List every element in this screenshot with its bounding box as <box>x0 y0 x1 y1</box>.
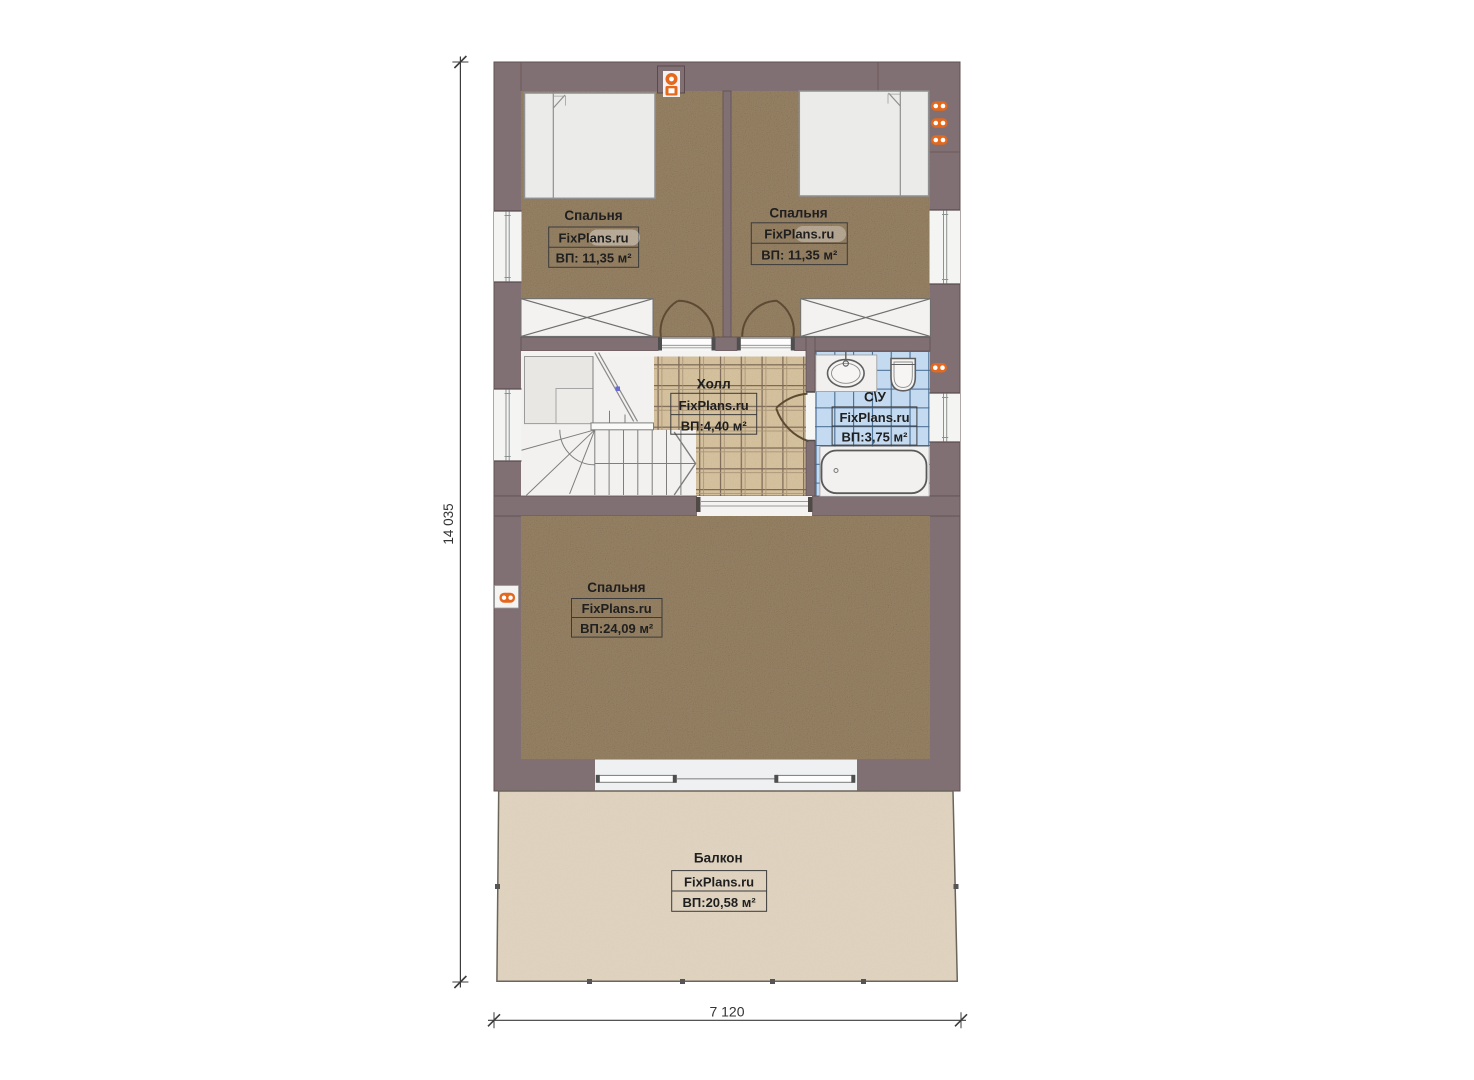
svg-text:ВП:3,75 м²: ВП:3,75 м² <box>842 429 909 444</box>
svg-text:Холл: Холл <box>697 377 731 392</box>
svg-text:ВП:4,40 м²: ВП:4,40 м² <box>681 418 748 433</box>
svg-text:FixPlans.ru: FixPlans.ru <box>839 410 909 425</box>
svg-text:Спальня: Спальня <box>564 208 622 223</box>
svg-text:FixPlans.ru: FixPlans.ru <box>679 398 749 413</box>
svg-text:Спальня: Спальня <box>587 580 645 595</box>
svg-text:ВП: 11,35 м²: ВП: 11,35 м² <box>761 248 838 263</box>
svg-text:ВП: 11,35 м²: ВП: 11,35 м² <box>556 251 633 266</box>
svg-text:С\У: С\У <box>864 390 887 405</box>
svg-text:ВП:24,09 м²: ВП:24,09 м² <box>580 621 654 636</box>
svg-text:FixPlans.ru: FixPlans.ru <box>764 227 834 242</box>
svg-text:FixPlans.ru: FixPlans.ru <box>684 874 754 889</box>
svg-text:7 120: 7 120 <box>709 1004 744 1020</box>
svg-text:FixPlans.ru: FixPlans.ru <box>559 230 629 245</box>
svg-text:FixPlans.ru: FixPlans.ru <box>582 601 652 616</box>
svg-text:ВП:20,58 м²: ВП:20,58 м² <box>683 895 757 910</box>
svg-text:Спальня: Спальня <box>769 206 827 221</box>
svg-text:Балкон: Балкон <box>694 851 743 866</box>
svg-text:14 035: 14 035 <box>441 503 456 544</box>
